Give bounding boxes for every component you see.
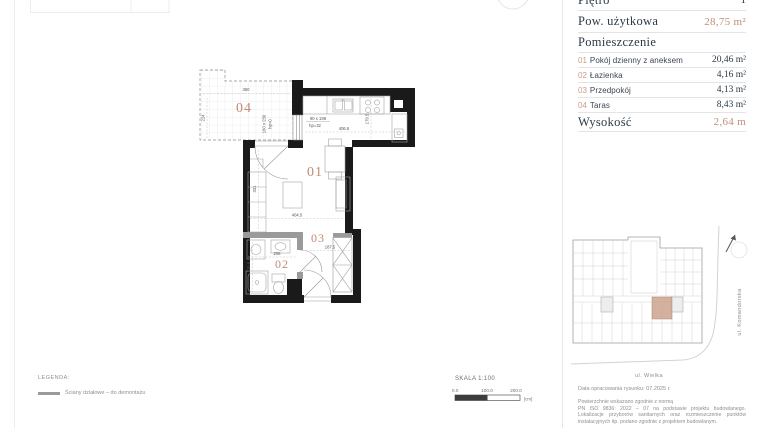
compass-circle-icon xyxy=(497,0,529,9)
room-row-living: 01 Pokój dzienny z aneksem 20,46 m² xyxy=(578,53,746,68)
dim-kitchen-depth: 179.5 xyxy=(365,113,370,124)
room-name: Łazienka xyxy=(590,71,623,80)
rooms-header: Pomieszczenie xyxy=(578,35,656,50)
room-number: 01 xyxy=(578,56,587,65)
north-arrow-icon xyxy=(726,235,747,258)
scale-bar: SKALA 1:100 0.0 100.0 200.0 [cm] xyxy=(452,376,532,402)
room-number: 03 xyxy=(578,86,587,95)
room-area: 20,46 m² xyxy=(712,55,746,65)
room-area: 4,16 m² xyxy=(717,70,746,80)
usable-area-row: Pow. użytkowa 28,75 m² xyxy=(578,11,746,33)
dim-living-depth: 331 xyxy=(252,185,257,193)
floor-row: Piętro 1 xyxy=(578,0,746,11)
dim-window: 90 x 198 xyxy=(310,116,327,121)
scale-tick-200: 200.0 xyxy=(510,388,522,393)
room-row-bathroom: 02 Łazienka 4,16 m² xyxy=(578,68,746,83)
floor-plan: 360 224 160 x 230 hp=0 90 x 198 hp=32 40… xyxy=(200,70,415,303)
room-area: 4,13 m² xyxy=(717,85,746,95)
dim-hall-width: 187.5 xyxy=(325,245,336,250)
legend-item-label: Ściany działowe – do demontażu xyxy=(65,390,145,396)
room-number: 02 xyxy=(578,71,587,80)
room-label-bath: 02 xyxy=(275,257,289,271)
room-area: 8,43 m² xyxy=(717,100,746,110)
note-body: PN ISO 9836: 2022 – 07 na podstawie proj… xyxy=(578,406,746,426)
scale-title: SKALA 1:100 xyxy=(455,376,495,382)
floor-label: Piętro xyxy=(578,0,610,8)
ceiling-height-label: Wysokość xyxy=(578,115,632,130)
footer-note: Data opracowania rysunku: 07.2025 r. Pow… xyxy=(578,386,746,425)
window xyxy=(293,115,302,140)
room-name: Pokój dzienny z aneksem xyxy=(590,56,683,65)
legend-item: Ściany działowe – do demontażu xyxy=(38,390,145,396)
dim-terrace-width: 360 xyxy=(243,87,251,92)
wardrobe xyxy=(333,233,352,292)
courtyard xyxy=(631,241,657,293)
room-name: Taras xyxy=(590,101,610,110)
dim-living-width: 404.5 xyxy=(292,213,303,218)
page-frame-lines xyxy=(15,0,171,428)
legend: LEGENDA: Ściany działowe – do demontażu xyxy=(38,375,145,396)
room-row-hallway: 03 Przedpokój 4,13 m² xyxy=(578,83,746,98)
scale-tick-100: 100.0 xyxy=(481,388,493,393)
usable-area-label: Pow. użytkowa xyxy=(578,14,658,29)
drawing-date: Data opracowania rysunku: 07.2025 r. xyxy=(578,386,746,392)
legend-title: LEGENDA: xyxy=(38,375,145,381)
living-furniture xyxy=(248,139,350,232)
dim-kitchen-width: 406.5 xyxy=(339,126,350,131)
unit-highlight xyxy=(652,297,672,319)
room-label-living: 01 xyxy=(307,165,323,180)
dim-window-hp: hp=32 xyxy=(309,123,321,128)
room-number: 04 xyxy=(578,101,587,110)
scale-unit: [cm] xyxy=(524,397,532,402)
room-name: Przedpokój xyxy=(590,86,631,95)
stair-core xyxy=(671,297,683,312)
dim-bath-depth: 216.5 xyxy=(246,261,251,272)
room-row-terrace: 04 Taras 8,43 m² xyxy=(578,98,746,113)
floor-plan-sheet: 360 224 160 x 230 hp=0 90 x 198 hp=32 40… xyxy=(0,0,760,428)
ceiling-height-value: 2,64 m xyxy=(714,116,746,128)
details-panel: Piętro 1 Pow. użytkowa 28,75 m² Pomieszc… xyxy=(563,0,760,132)
usable-area-value: 28,75 m² xyxy=(704,16,746,28)
dim-terrace-door-hp: hp=0 xyxy=(268,119,273,129)
stair-core xyxy=(601,297,613,312)
dim-terrace-depth: 224 xyxy=(201,114,206,122)
ceiling-height-row: Wysokość 2,64 m xyxy=(578,113,746,132)
site-plan: ul. Wielka ul. Komandorska xyxy=(571,226,747,379)
street-label-wielka: ul. Wielka xyxy=(635,373,663,379)
dim-terrace-door: 160 x 230 xyxy=(262,114,267,133)
partition-wall-swatch xyxy=(38,392,60,395)
room-label-terrace: 04 xyxy=(236,101,252,116)
dim-bath-width: 208 xyxy=(274,251,282,256)
scale-tick-0: 0.0 xyxy=(452,388,459,393)
street-label-komandorska: ul. Komandorska xyxy=(737,288,743,336)
rooms-header-row: Pomieszczenie xyxy=(578,33,746,53)
room-label-hall: 03 xyxy=(311,231,325,245)
floor-value: 1 xyxy=(741,0,747,6)
